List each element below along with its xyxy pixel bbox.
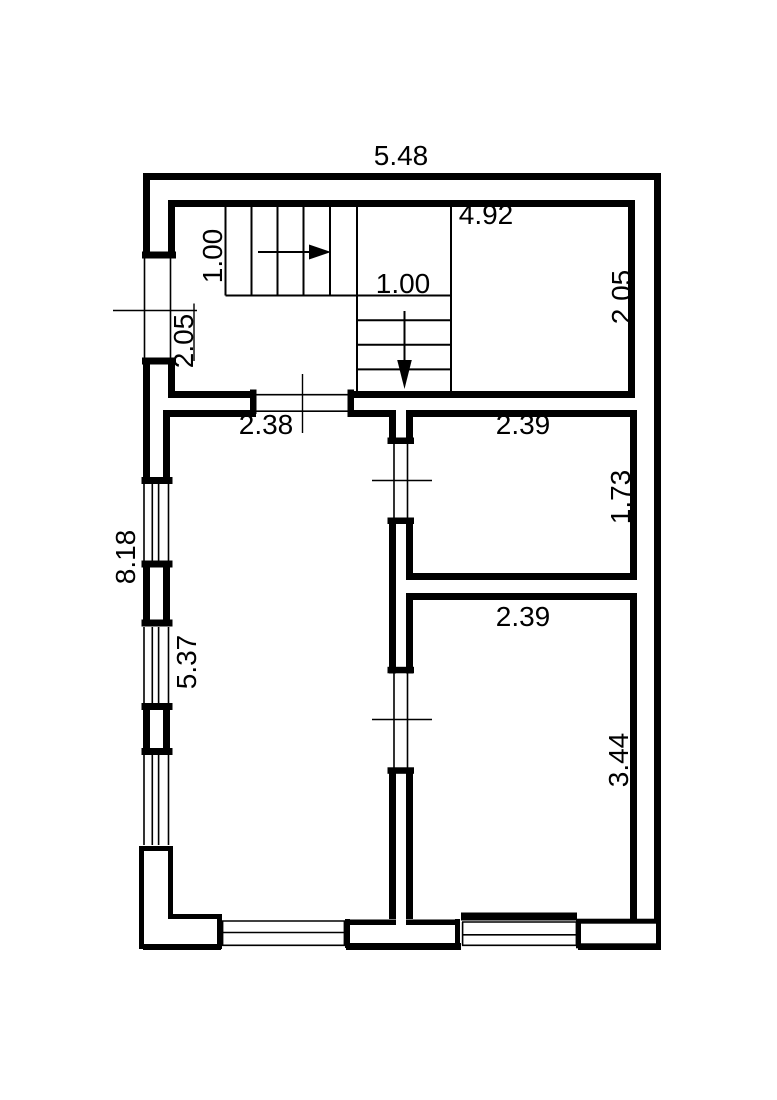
dim-stairs-down-width: 1.00 bbox=[376, 268, 431, 299]
dim-hall-door-offset: 2.38 bbox=[239, 409, 294, 440]
floor-plan-page: 5.48 4.92 1.00 1.00 2.05 2.05 2.38 2.39 … bbox=[0, 0, 777, 1100]
room-2-outline bbox=[410, 597, 634, 922]
dim-room-2-depth: 3.44 bbox=[603, 733, 634, 788]
dim-overall-width: 5.48 bbox=[374, 140, 429, 171]
door-room-1-jamb-bottom bbox=[388, 518, 415, 525]
dim-hall-depth-right: 2.05 bbox=[606, 270, 637, 325]
pier-block-top-edge-left bbox=[345, 920, 396, 926]
dim-hall-inner-width: 4.92 bbox=[459, 199, 514, 230]
dim-living-room-depth: 5.37 bbox=[171, 635, 202, 690]
window-left-1-cap-bottom bbox=[142, 561, 173, 568]
window-left-3-cap-top bbox=[142, 748, 173, 755]
window-left-2-cap-bottom bbox=[142, 703, 173, 710]
corner-block-bottom-right bbox=[579, 921, 659, 946]
dim-room-1-width: 2.39 bbox=[496, 409, 551, 440]
door-room-1-jamb-top bbox=[388, 438, 415, 445]
window-hall-left-cap-top bbox=[142, 252, 176, 259]
door-hall-jamb-right bbox=[348, 390, 355, 415]
door-room-2-jamb-bottom bbox=[388, 767, 415, 774]
window-left-1-cap-top bbox=[142, 477, 173, 484]
dim-room-2-width: 2.39 bbox=[496, 601, 551, 632]
dim-left-side-total: 8.18 bbox=[110, 530, 141, 585]
room-2-bottom-wall-leaf bbox=[461, 913, 577, 921]
door-room-2 bbox=[387, 674, 416, 768]
dim-hall-depth-left: 2.05 bbox=[168, 314, 199, 369]
dim-room-1-depth: 1.73 bbox=[605, 470, 636, 525]
dim-stairs-up-width: 1.00 bbox=[197, 229, 228, 284]
window-bottom-1 bbox=[221, 907, 346, 950]
floor-plan-drawing: 5.48 4.92 1.00 1.00 2.05 2.05 2.38 2.39 … bbox=[0, 0, 777, 1100]
pier-block-top-edge-right bbox=[406, 920, 460, 926]
door-room-2-jamb-top bbox=[388, 667, 415, 674]
window-left-2-cap-top bbox=[142, 620, 173, 627]
